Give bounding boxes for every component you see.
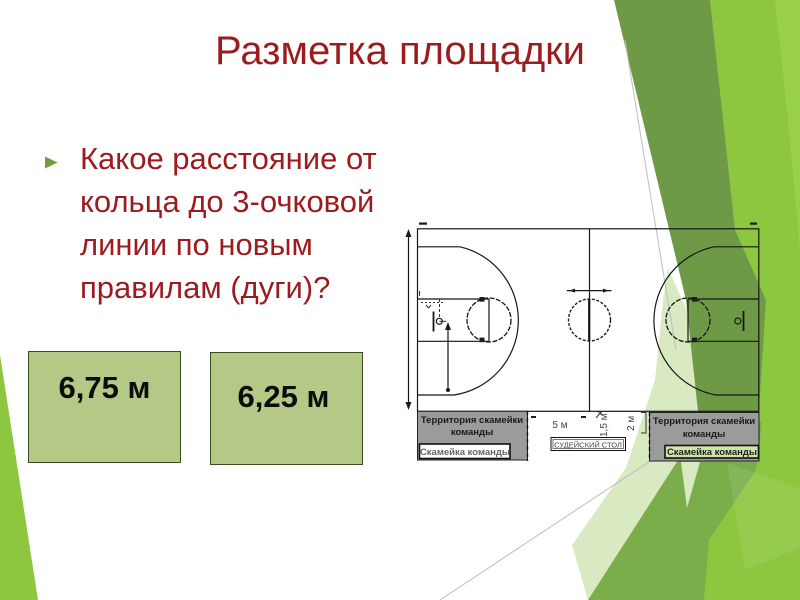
svg-text:Территория скамейки: Территория скамейки [653,416,755,427]
svg-text:команды: команды [451,427,493,438]
svg-text:2 м: 2 м [626,416,637,431]
svg-text:Скамейка команды: Скамейка команды [667,447,757,458]
svg-text:СУДЕЙСКИЙ СТОЛ: СУДЕЙСКИЙ СТОЛ [554,441,622,450]
svg-text:команды: команды [683,429,725,440]
svg-text:Скамейка команды: Скамейка команды [420,447,510,458]
svg-text:1,5 м: 1,5 м [599,413,610,437]
svg-text:Территория скамейки: Территория скамейки [421,415,523,426]
svg-text:5 м: 5 м [552,420,567,431]
